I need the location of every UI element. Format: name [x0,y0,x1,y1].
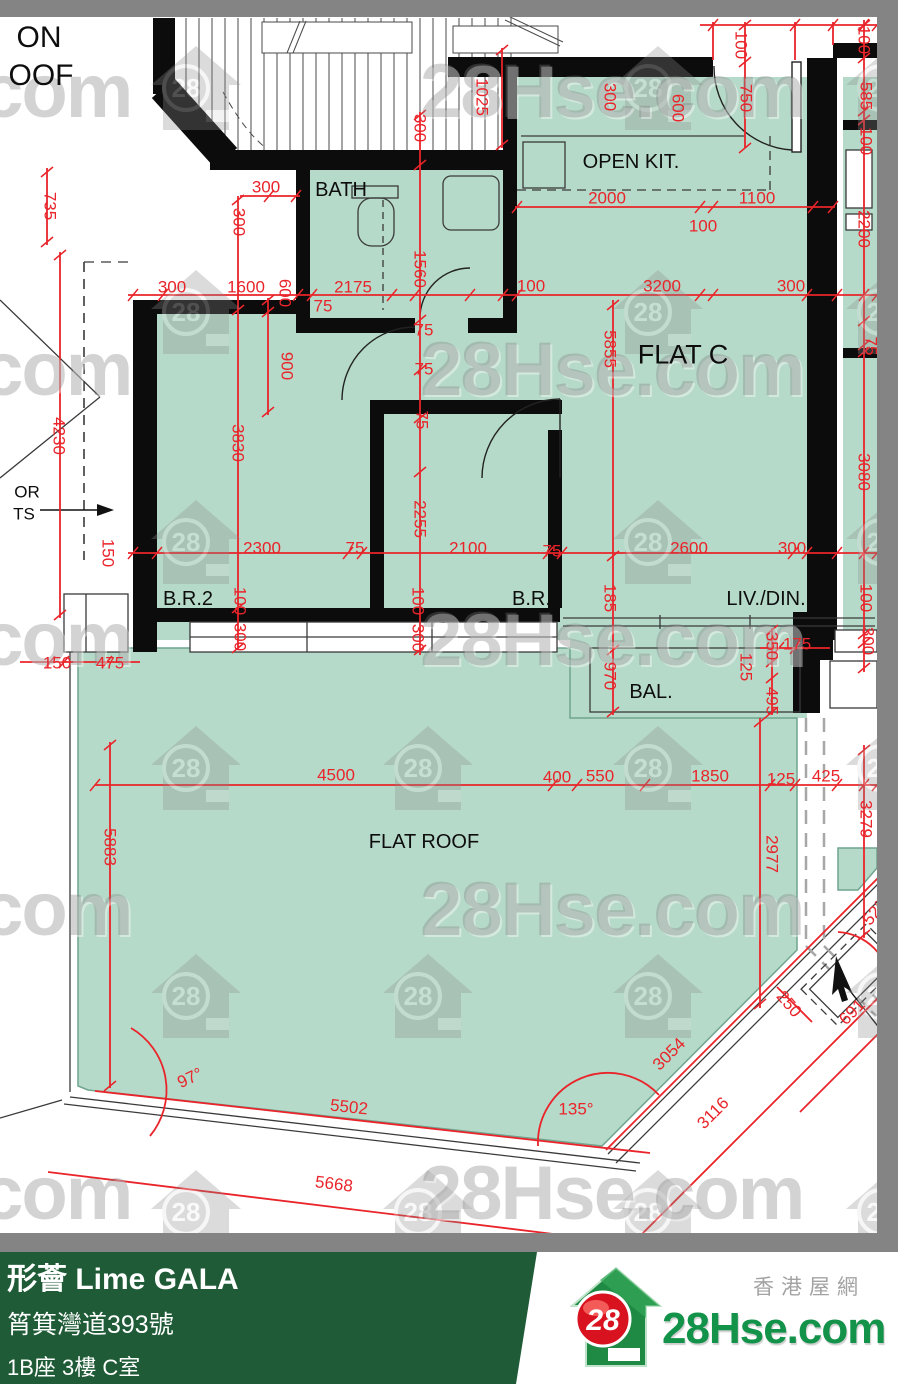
property-unit: 1B座 3樓 C室 [7,1350,560,1382]
frame-right [877,0,898,1252]
property-info: 形薈 Lime GALA 筲箕灣道393號 1B座 3樓 C室 489 sqf(… [0,1252,560,1384]
floorplan: 28 28 28 28 [0,0,898,1233]
frame-bottom [0,1233,898,1252]
house-logo-icon: 28 [570,1266,662,1370]
28hse-logo: 28 28Hse.com 香港屋網 [570,1266,890,1376]
footer-bar: 形薈 Lime GALA 筲箕灣道393號 1B座 3樓 C室 489 sqf(… [0,1252,898,1384]
property-address: 筲箕灣道393號 [7,1305,560,1341]
floorplan-svg [0,0,898,1233]
property-title: 形薈 Lime GALA [7,1254,560,1298]
frame-top [0,0,898,17]
svg-text:28: 28 [585,1304,620,1337]
brand-text: 28Hse.com [662,1304,885,1354]
brand-tagline: 香港屋網 [753,1271,865,1301]
screenshot-stage: 28 28 28 28 [0,0,898,1384]
